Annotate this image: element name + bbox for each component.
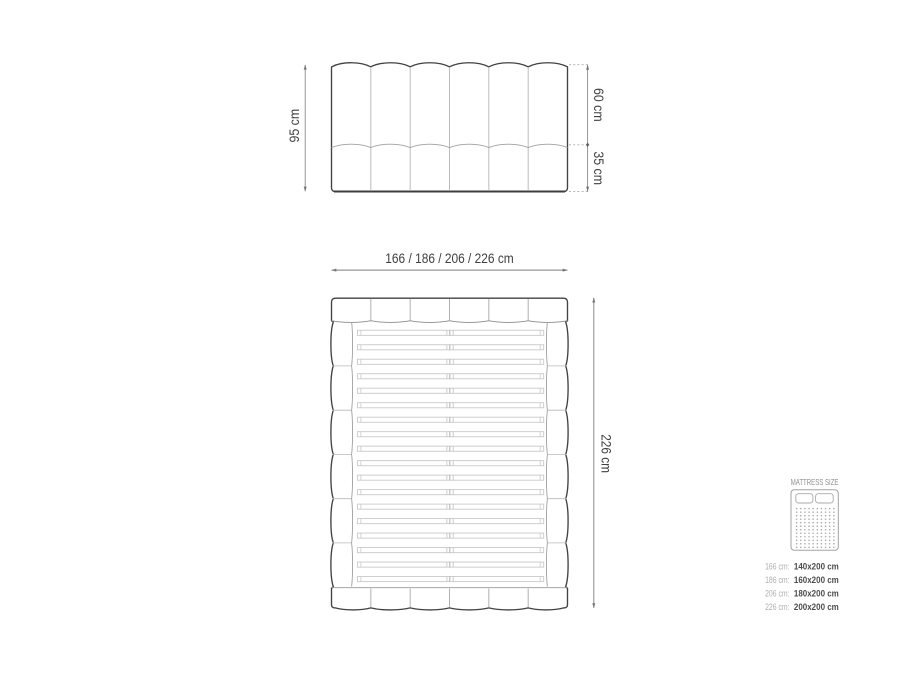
svg-text:186 cm:: 186 cm: — [765, 575, 789, 585]
svg-text:226 cm:: 226 cm: — [765, 602, 789, 612]
svg-text:35 cm: 35 cm — [591, 151, 606, 185]
svg-text:160x200 cm: 160x200 cm — [794, 575, 839, 585]
svg-text:200x200 cm: 200x200 cm — [794, 602, 839, 612]
svg-text:226 cm: 226 cm — [599, 434, 614, 473]
svg-text:206 cm:: 206 cm: — [765, 589, 789, 599]
svg-text:166 / 186 / 206 / 226 cm: 166 / 186 / 206 / 226 cm — [385, 251, 513, 266]
svg-text:60 cm: 60 cm — [591, 88, 606, 122]
svg-text:140x200 cm: 140x200 cm — [794, 561, 839, 571]
svg-text:180x200 cm: 180x200 cm — [794, 589, 839, 599]
svg-text:95 cm: 95 cm — [287, 109, 302, 143]
svg-text:MATTRESS SIZE: MATTRESS SIZE — [791, 477, 839, 487]
svg-text:166 cm:: 166 cm: — [765, 561, 789, 571]
